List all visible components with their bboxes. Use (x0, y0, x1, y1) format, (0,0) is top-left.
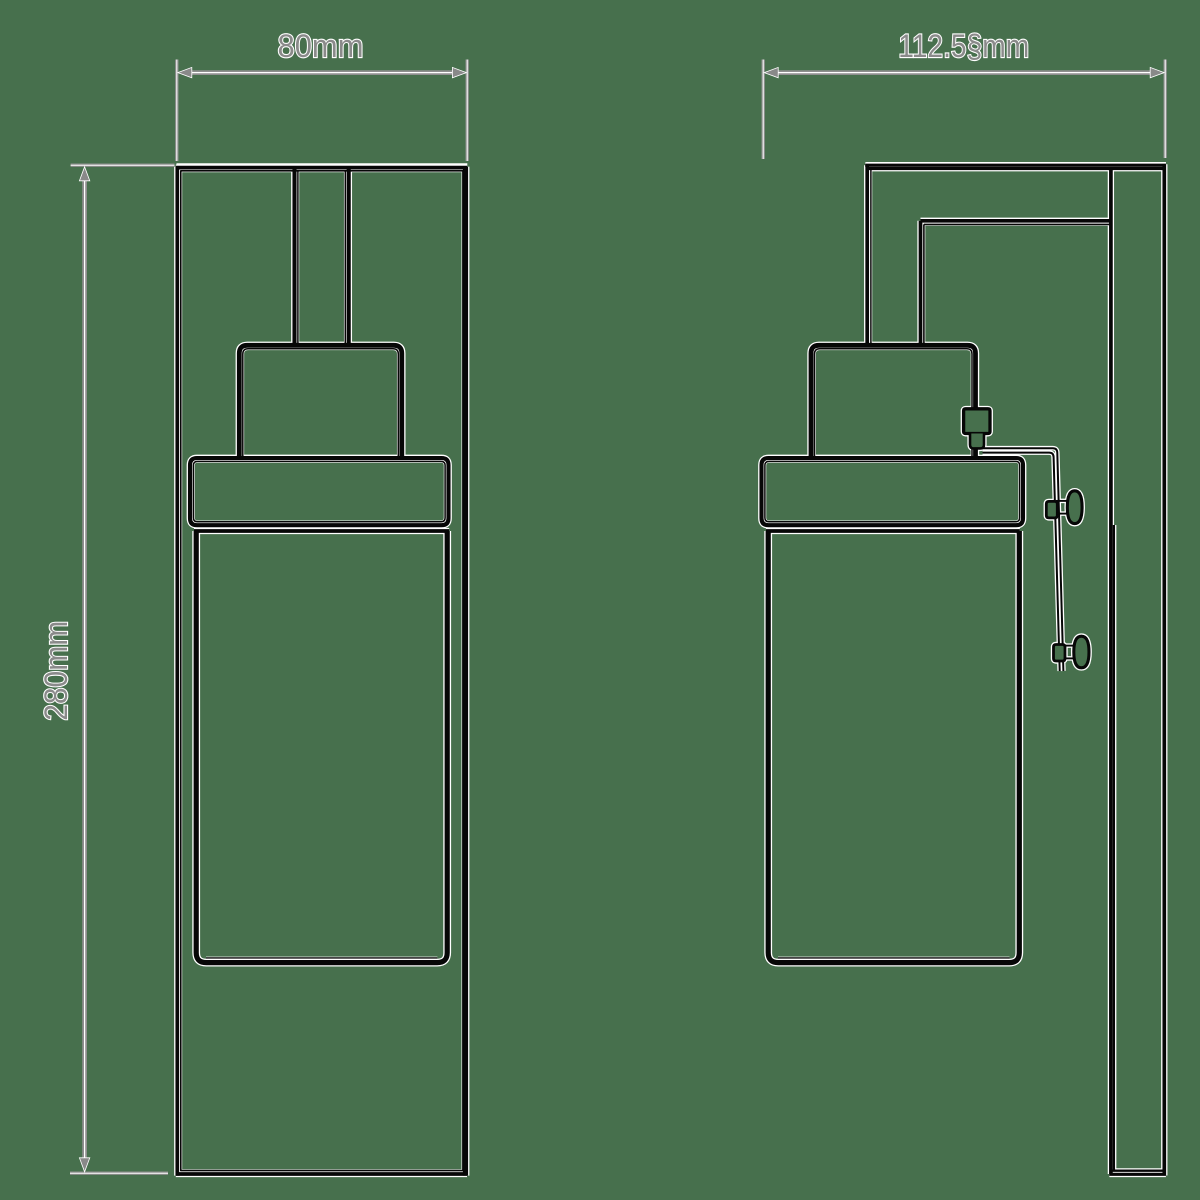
svg-text:80mm: 80mm (278, 28, 364, 64)
svg-text:280mm: 280mm (38, 621, 74, 721)
svg-text:112.5§mm: 112.5§mm (898, 28, 1029, 64)
